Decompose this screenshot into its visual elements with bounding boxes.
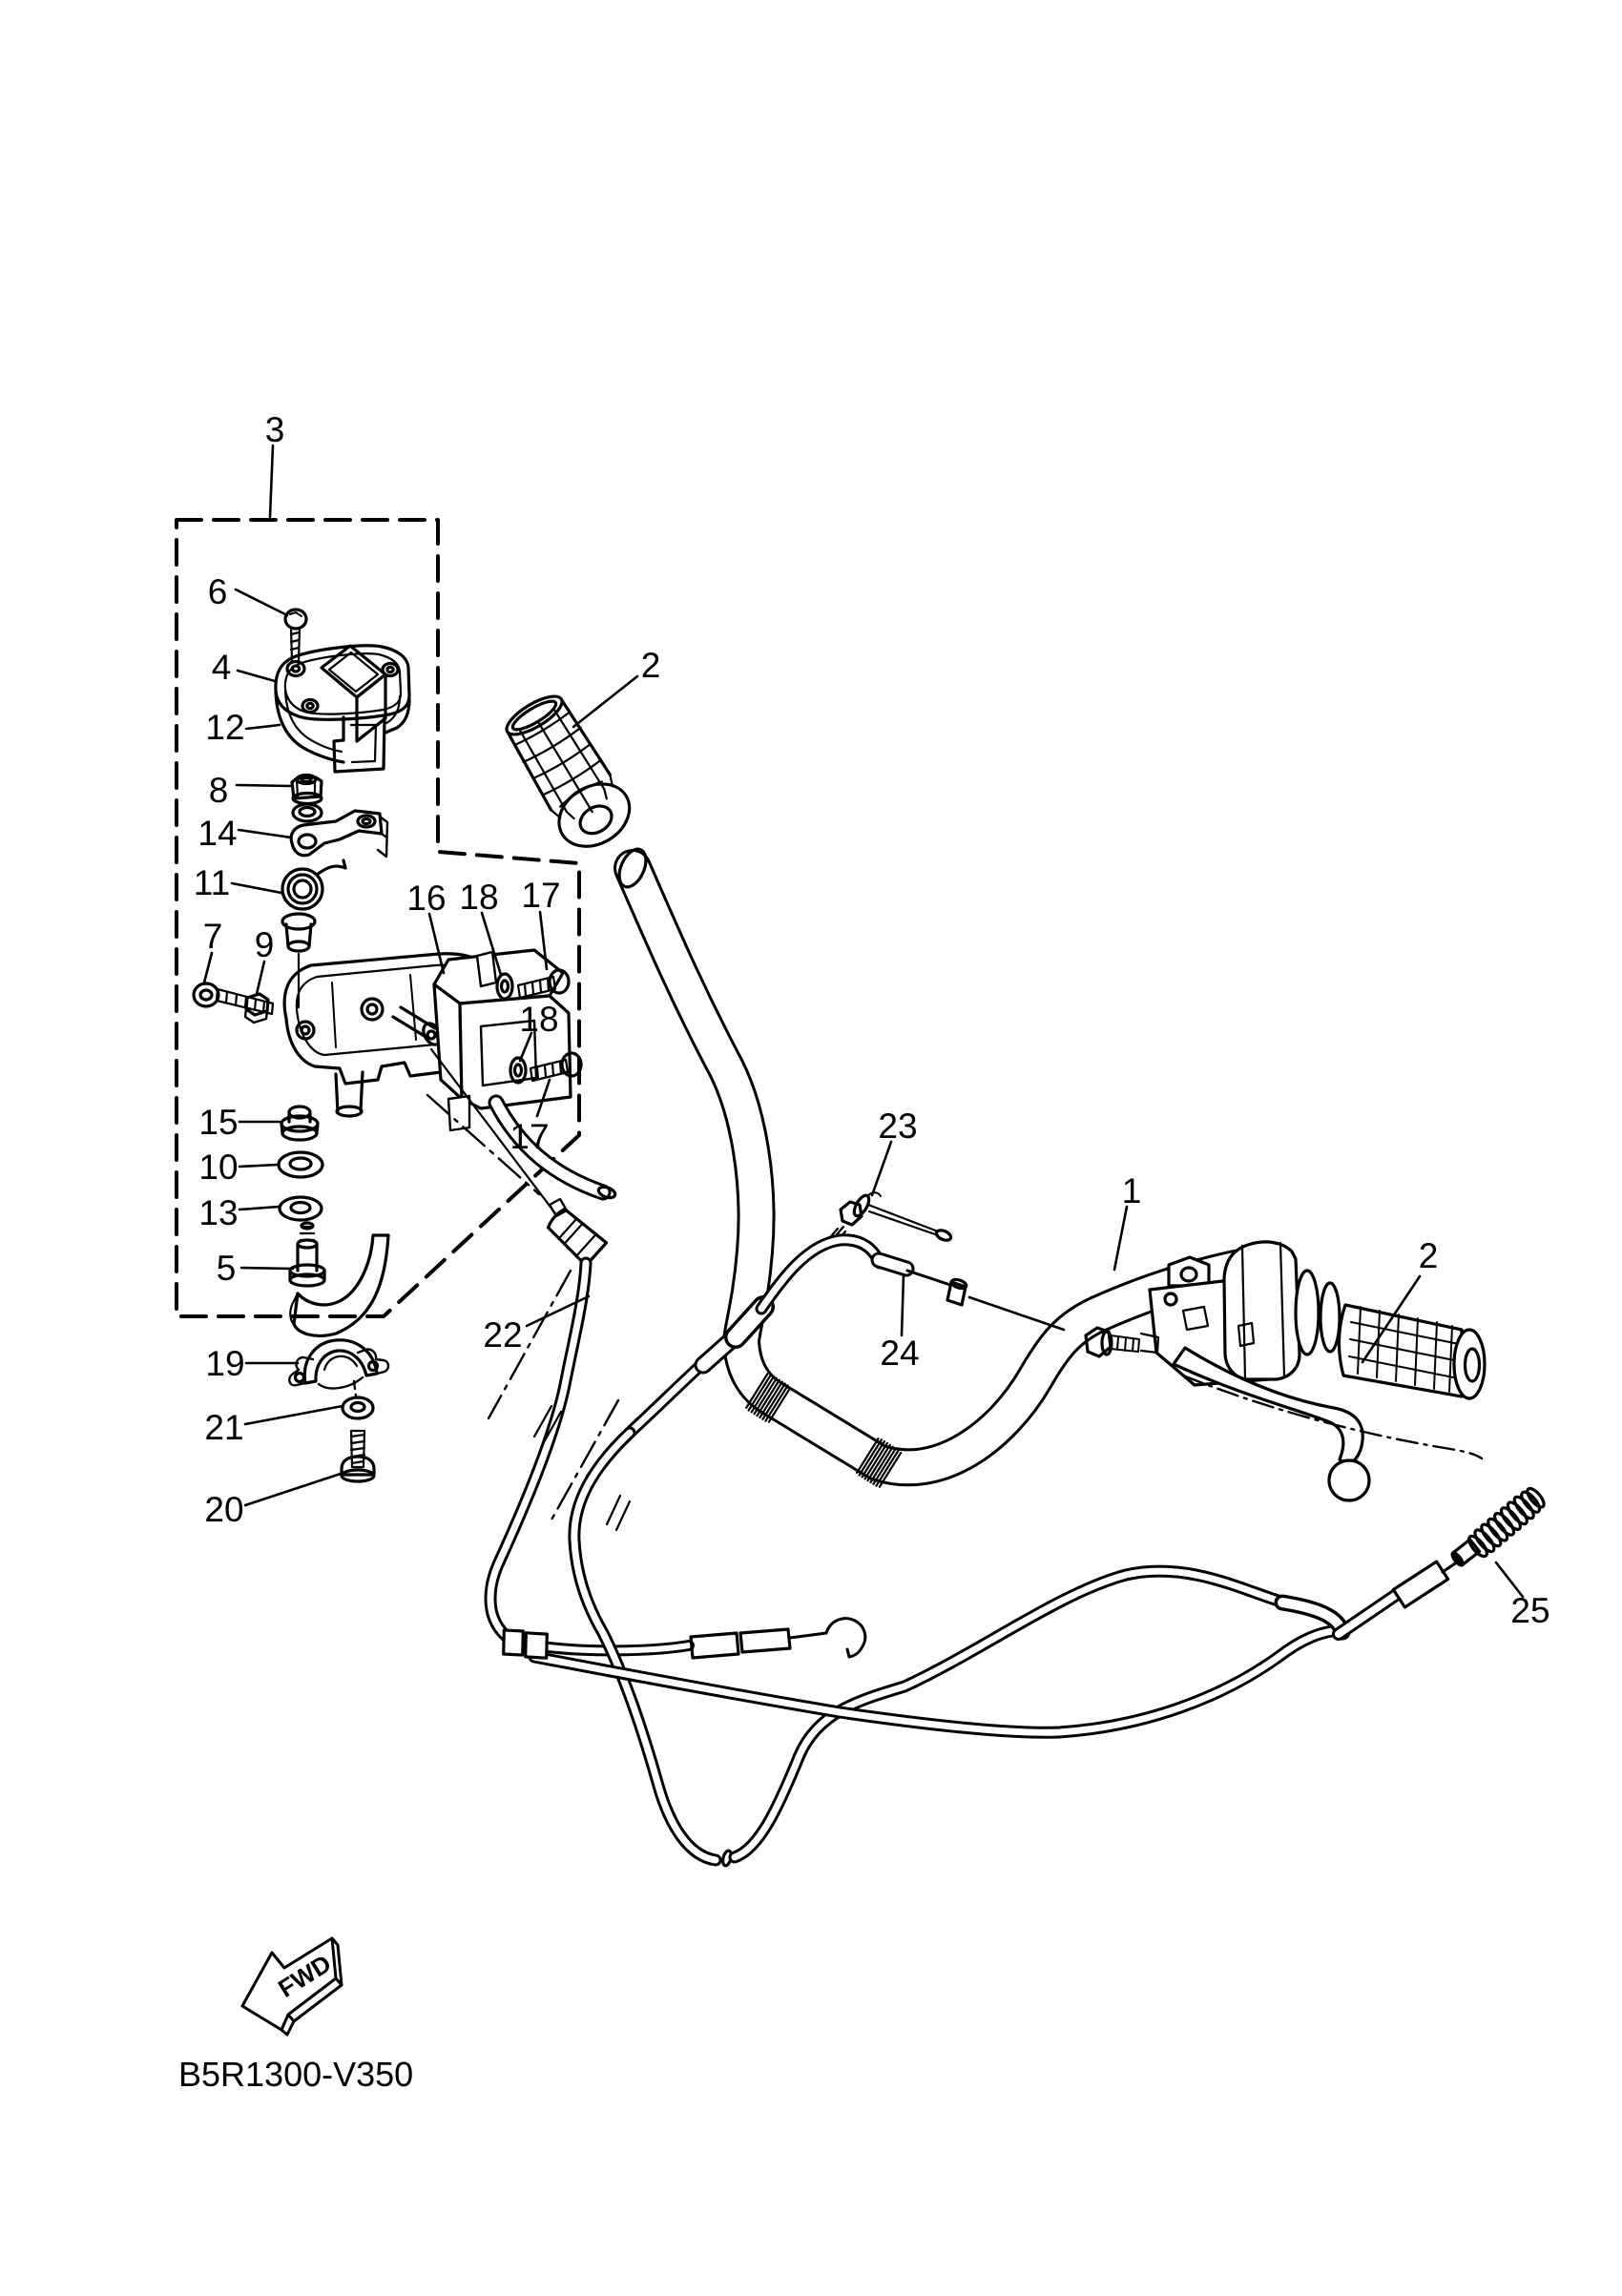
svg-text:25: 25 (1510, 1591, 1549, 1630)
svg-text:5: 5 (217, 1249, 237, 1288)
svg-text:9: 9 (255, 925, 275, 964)
svg-text:6: 6 (208, 572, 228, 611)
svg-text:24: 24 (880, 1334, 919, 1373)
svg-text:16: 16 (406, 879, 446, 918)
svg-text:12: 12 (205, 708, 244, 747)
svg-text:4: 4 (212, 648, 232, 687)
svg-text:3: 3 (265, 410, 285, 449)
svg-text:20: 20 (204, 1490, 243, 1529)
svg-text:8: 8 (209, 771, 229, 810)
svg-text:17: 17 (521, 876, 560, 915)
svg-text:B5R1300-V350: B5R1300-V350 (178, 2055, 413, 2094)
svg-text:18: 18 (459, 878, 498, 917)
svg-text:19: 19 (205, 1344, 244, 1383)
svg-text:13: 13 (198, 1193, 238, 1232)
svg-text:7: 7 (203, 917, 223, 956)
svg-text:15: 15 (198, 1103, 238, 1142)
svg-text:14: 14 (198, 814, 237, 853)
svg-text:22: 22 (483, 1315, 522, 1355)
svg-text:2: 2 (641, 646, 661, 685)
svg-text:10: 10 (198, 1148, 238, 1187)
svg-text:17: 17 (509, 1117, 549, 1156)
svg-text:1: 1 (1122, 1171, 1142, 1210)
svg-text:23: 23 (878, 1107, 917, 1146)
svg-text:18: 18 (519, 1000, 558, 1039)
svg-text:2: 2 (1419, 1236, 1439, 1275)
svg-text:11: 11 (194, 863, 230, 902)
svg-text:21: 21 (204, 1408, 243, 1447)
